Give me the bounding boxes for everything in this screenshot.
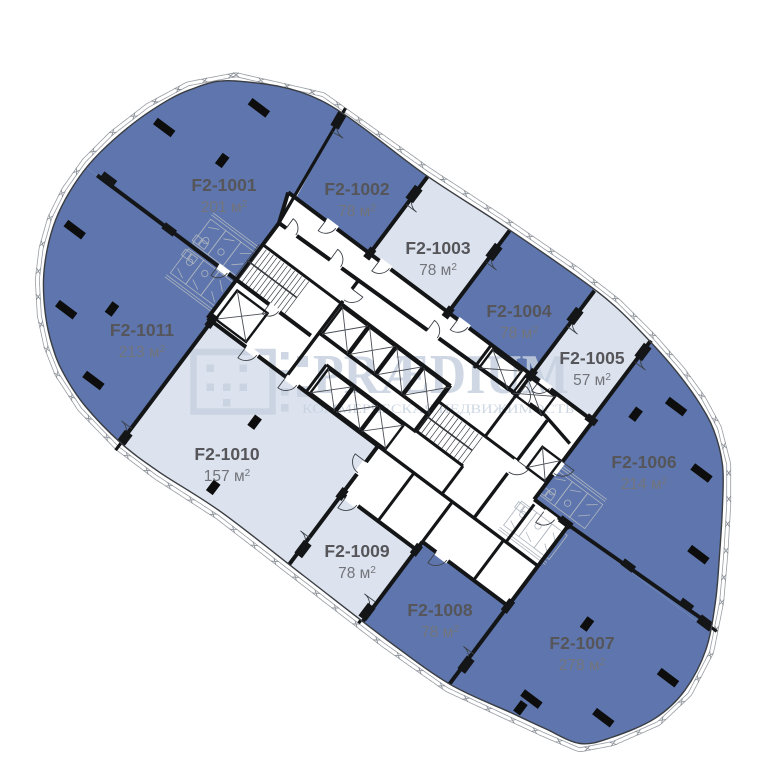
svg-text:F2-1001: F2-1001 bbox=[191, 175, 256, 195]
svg-text:157 м2: 157 м2 bbox=[204, 468, 251, 485]
svg-text:F2-1010: F2-1010 bbox=[194, 444, 259, 464]
svg-text:201 м2: 201 м2 bbox=[201, 199, 248, 216]
svg-text:F2-1007: F2-1007 bbox=[549, 633, 614, 653]
svg-text:F2-1008: F2-1008 bbox=[407, 600, 472, 620]
svg-text:F2-1003: F2-1003 bbox=[405, 238, 470, 258]
svg-text:213 м2: 213 м2 bbox=[119, 344, 166, 361]
svg-text:F2-1004: F2-1004 bbox=[486, 301, 551, 321]
svg-text:214 м2: 214 м2 bbox=[621, 476, 668, 493]
svg-text:F2-1009: F2-1009 bbox=[324, 541, 389, 561]
svg-text:F2-1011: F2-1011 bbox=[110, 320, 174, 340]
svg-text:F2-1005: F2-1005 bbox=[559, 348, 624, 368]
svg-text:F2-1002: F2-1002 bbox=[324, 179, 389, 199]
svg-text:F2-1006: F2-1006 bbox=[611, 452, 676, 472]
svg-text:278 м2: 278 м2 bbox=[559, 657, 606, 674]
